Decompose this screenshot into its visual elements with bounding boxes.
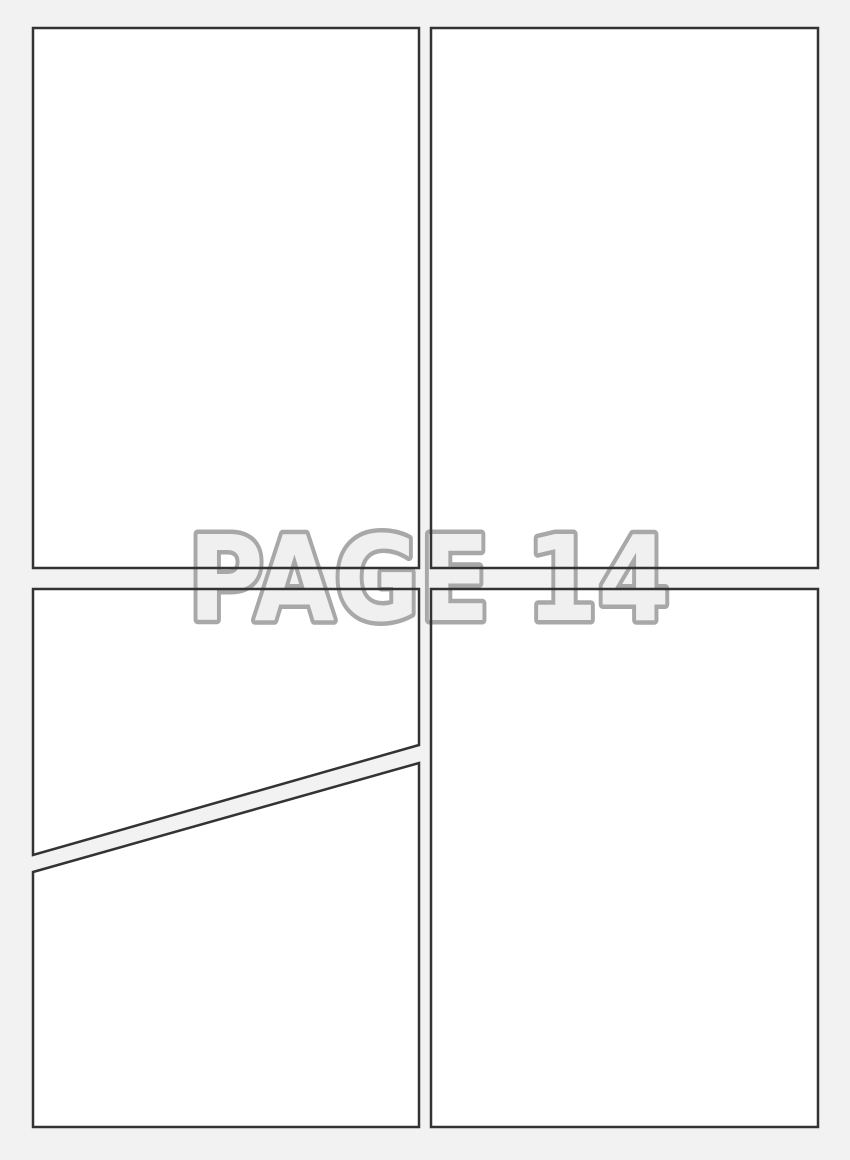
page-canvas: PAGE 14 bbox=[0, 0, 850, 1160]
page-number-watermark: PAGE 14 bbox=[188, 510, 670, 648]
comic-page-template: PAGE 14 bbox=[0, 0, 850, 1160]
panel-top-left-fill bbox=[33, 28, 419, 568]
page-background: { "page": { "label": "PAGE 14" }, "theme… bbox=[0, 0, 850, 1160]
panel-top-right-fill bbox=[431, 28, 818, 568]
panel-bottom-right-fill bbox=[431, 589, 818, 1127]
